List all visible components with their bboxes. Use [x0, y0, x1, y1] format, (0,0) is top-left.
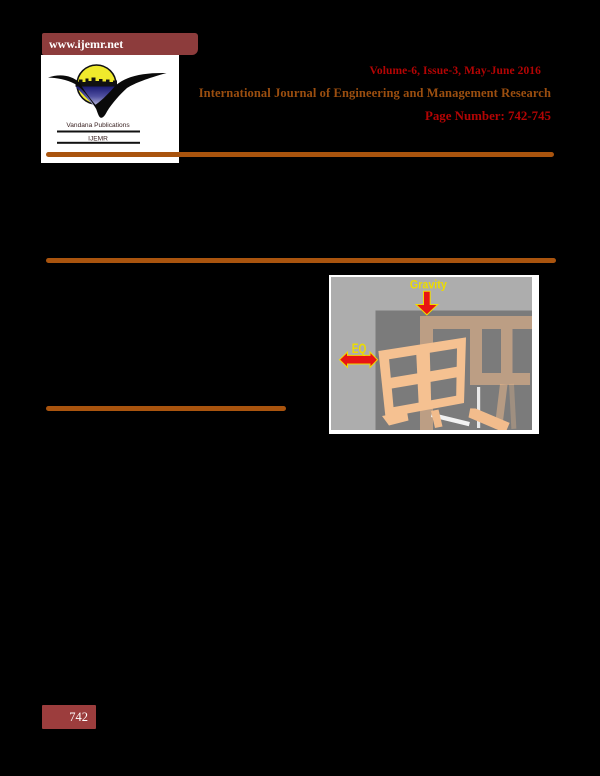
svg-text:Vandana Publications: Vandana Publications — [66, 122, 130, 129]
svg-text:IJEMR: IJEMR — [88, 136, 108, 143]
svg-text:Gravity: Gravity — [410, 280, 448, 292]
svg-text:EQ: EQ — [352, 341, 367, 356]
